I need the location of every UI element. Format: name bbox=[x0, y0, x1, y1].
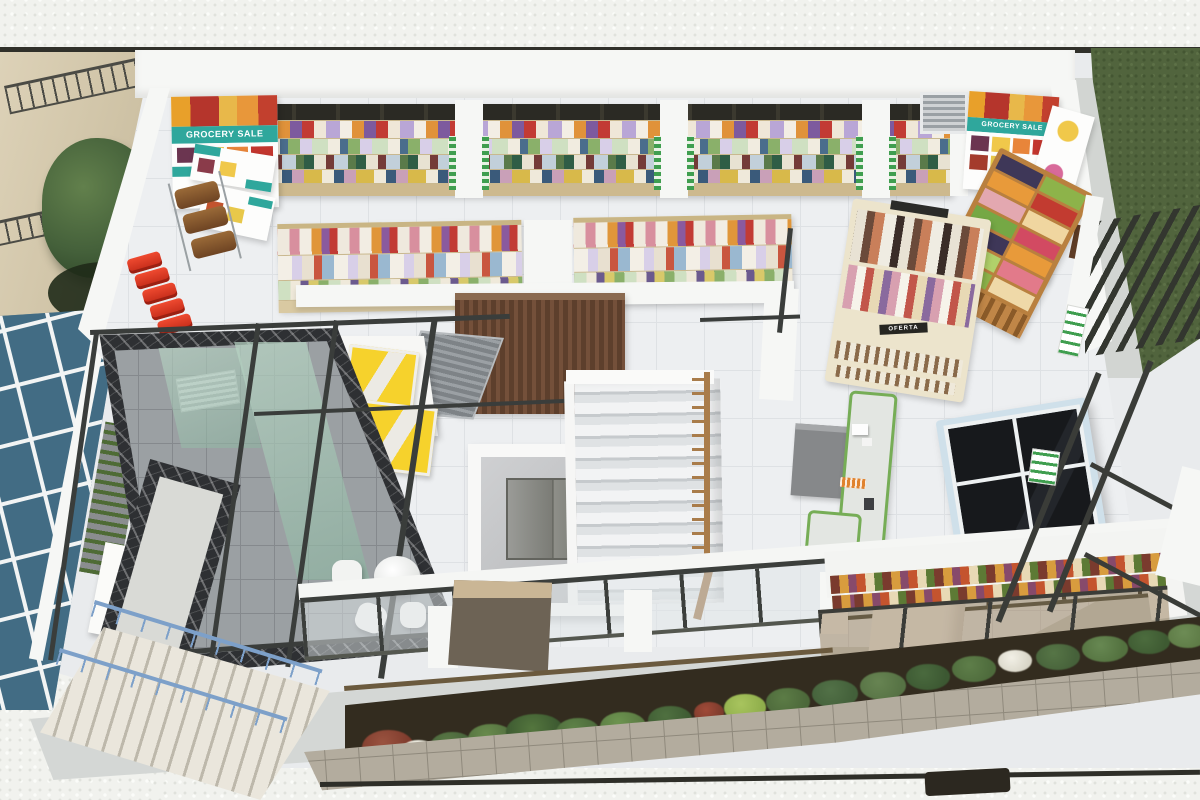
stair-railing bbox=[704, 372, 710, 576]
white-flowers bbox=[998, 650, 1032, 672]
shrub bbox=[1082, 636, 1128, 662]
shrub bbox=[906, 664, 950, 690]
offer-island: OFERTA bbox=[824, 198, 991, 403]
shelf-row-3 bbox=[252, 155, 952, 170]
wall-shelving bbox=[252, 104, 952, 196]
garden-bench bbox=[924, 768, 1010, 796]
pillar-1 bbox=[455, 100, 483, 198]
shrub bbox=[1036, 644, 1080, 670]
counter-promo-strip bbox=[840, 477, 867, 489]
shelf-row-4 bbox=[252, 170, 952, 184]
offer-label: OFERTA bbox=[879, 322, 927, 334]
brown-basket bbox=[173, 180, 221, 210]
photo-chip bbox=[1012, 138, 1031, 154]
shelf-row-1 bbox=[252, 121, 952, 139]
pillar-3 bbox=[862, 100, 890, 198]
fruit-banner bbox=[171, 95, 278, 127]
promo-panel bbox=[856, 136, 863, 190]
brown-basket bbox=[190, 230, 238, 260]
gondola-row-1 bbox=[573, 219, 791, 249]
shrub bbox=[860, 672, 906, 700]
photo-chip bbox=[969, 154, 988, 170]
teal-corner bbox=[248, 196, 273, 209]
gondola-row-1 bbox=[277, 225, 521, 256]
supermarket-3d-render: GROCERY SALE bbox=[0, 0, 1200, 800]
photo-chip bbox=[970, 135, 989, 151]
store-back-wall bbox=[135, 50, 1075, 98]
shelf-row-2 bbox=[252, 139, 952, 155]
awning-top-band bbox=[448, 580, 552, 598]
promo-panel bbox=[482, 136, 489, 190]
pos-printer bbox=[862, 438, 872, 446]
photo-chip bbox=[197, 158, 215, 174]
ac-vent-grille bbox=[920, 92, 968, 134]
green-sign-2 bbox=[1028, 448, 1060, 486]
promo-panel bbox=[889, 136, 896, 190]
pos-terminal bbox=[852, 424, 868, 435]
entrance-awning bbox=[448, 580, 552, 672]
shrub bbox=[952, 656, 996, 682]
shrub bbox=[1168, 624, 1200, 648]
pergola-louvers bbox=[1085, 205, 1200, 357]
top-gravel-band bbox=[0, 0, 1200, 48]
promo-panel bbox=[687, 136, 694, 190]
promo-panel bbox=[654, 136, 661, 190]
checkout-return-bin bbox=[791, 423, 848, 498]
brown-basket bbox=[182, 205, 230, 235]
shelf-base bbox=[252, 184, 952, 196]
shelf-canopy-row bbox=[252, 104, 952, 121]
storefront-pier bbox=[624, 590, 652, 652]
grocery-sale-text-left: GROCERY SALE bbox=[172, 125, 278, 144]
promo-panel bbox=[449, 136, 456, 190]
shrub bbox=[1128, 630, 1170, 654]
pillar-2 bbox=[660, 100, 688, 198]
card-reader bbox=[864, 498, 874, 510]
